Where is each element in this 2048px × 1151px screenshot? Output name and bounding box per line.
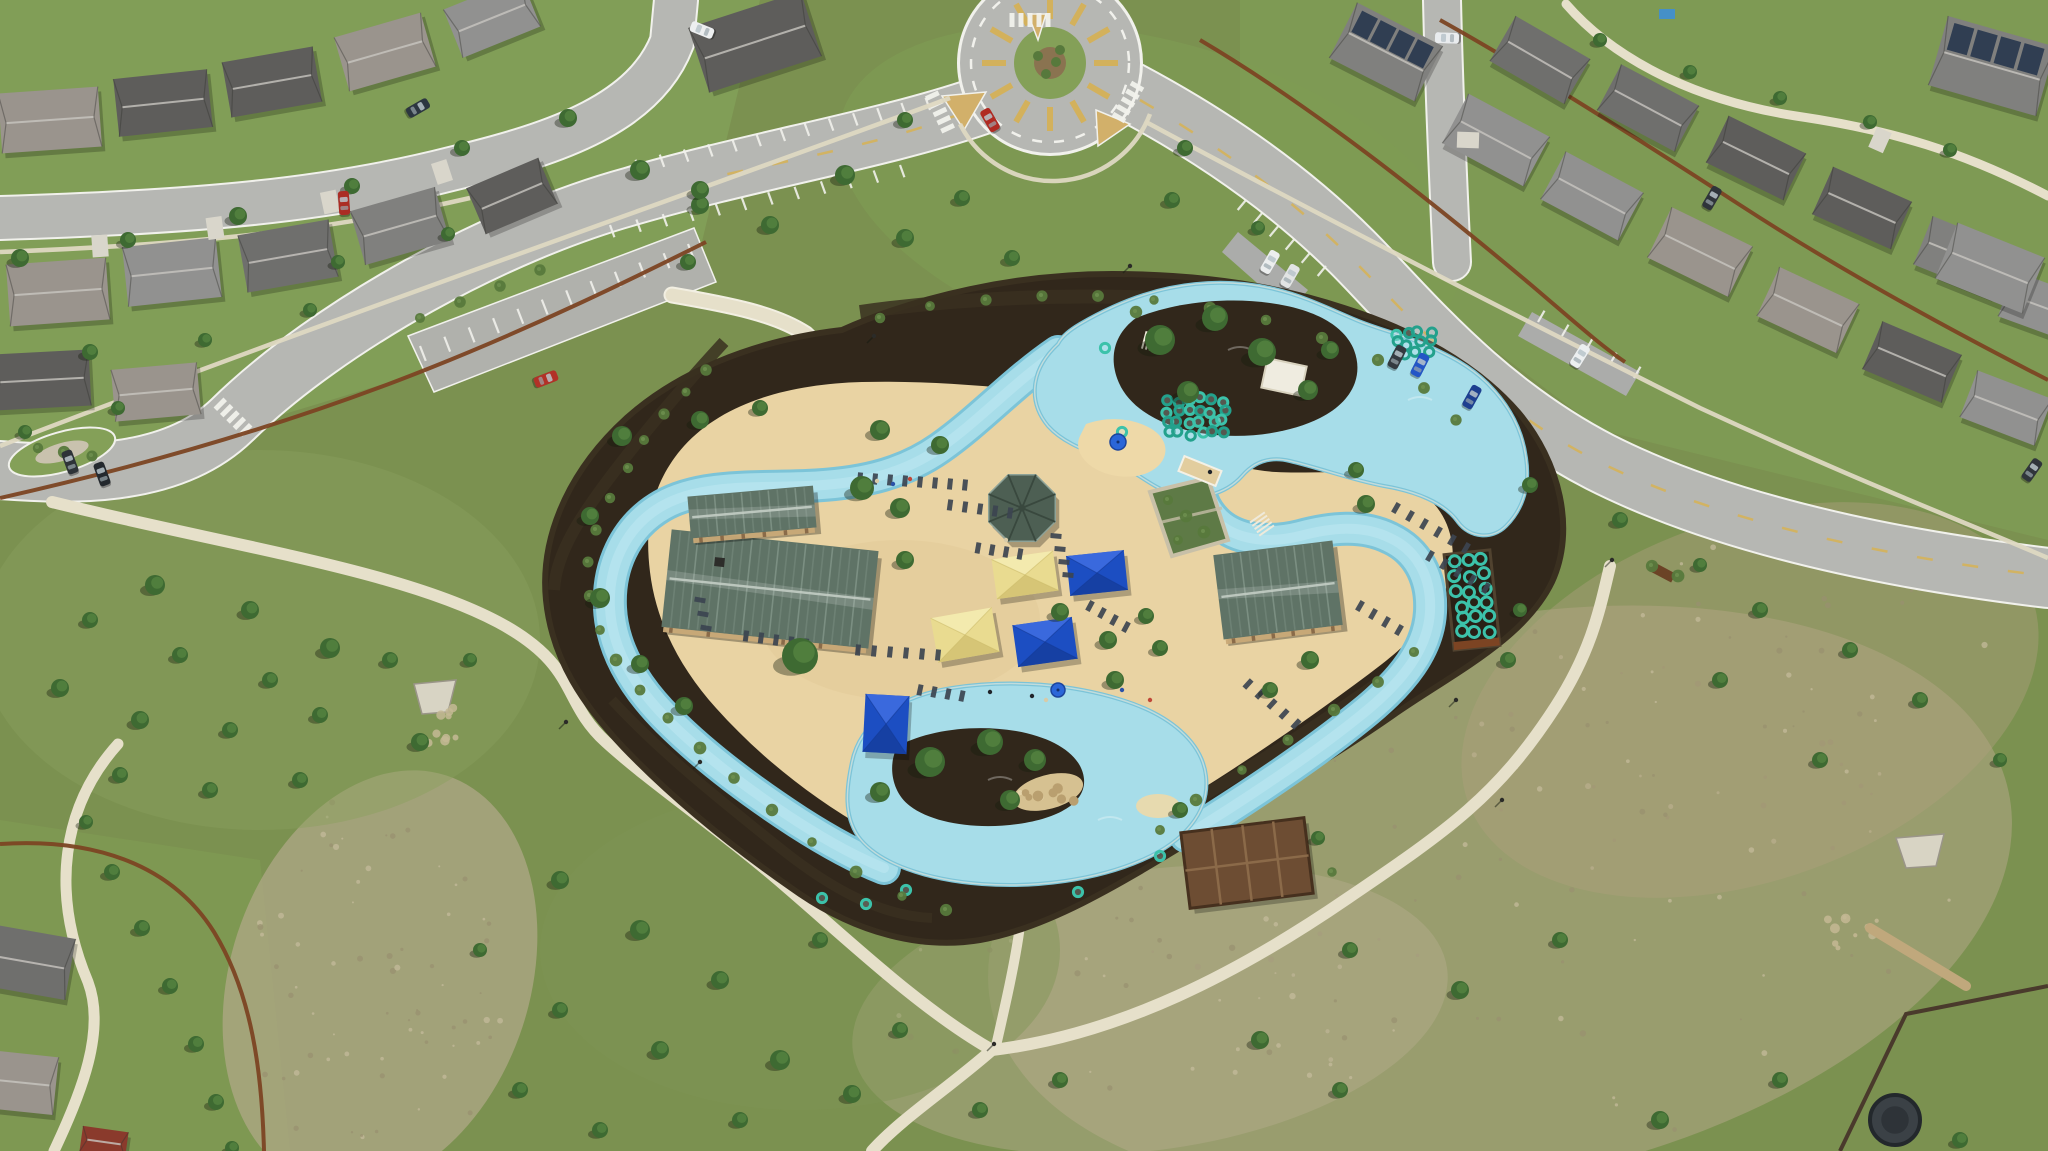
dirt-speckle [1819,648,1825,654]
dirt-speckle [351,1131,353,1133]
shrub-highlight [1165,497,1169,501]
dirt-speckle [390,833,396,839]
tree-canopy-highlight [1143,609,1153,619]
lamp-post [1128,264,1132,268]
tree-canopy-highlight [477,944,485,952]
pool-tube [817,893,826,902]
tube-storage-pen [1444,550,1500,650]
blue-shade-sail [1012,617,1081,673]
dirt-speckle [430,964,434,968]
tree-canopy-highlight [17,251,28,262]
rock [1830,923,1840,933]
wall-column [706,632,710,637]
car-windshield [340,197,348,203]
shrub-highlight [1095,293,1099,297]
dirt-speckle [329,843,333,847]
dirt-speckle [1947,898,1950,901]
dirt-speckle [1569,887,1574,892]
dirt-speckle [488,1036,492,1040]
dirt-speckle [1514,902,1519,907]
shrub-highlight [641,437,645,441]
pool-tube [1173,427,1182,436]
tree-canopy-highlight [1457,983,1468,994]
dirt-speckle [409,1028,413,1032]
shrub-highlight [637,687,641,691]
pool-tube [1175,406,1184,415]
blue-shade-sail [862,694,912,760]
tree-canopy-highlight [876,784,888,796]
pool-tube [1073,887,1082,896]
tree-canopy-highlight [387,653,397,663]
wall-column [818,643,822,648]
dirt-speckle [1749,847,1755,853]
dirt-speckle [1850,954,1853,957]
dirt-speckle [1651,670,1654,673]
tree-canopy-highlight [445,228,453,236]
dirt-speckle [1785,635,1787,637]
tree-canopy-highlight [849,1087,860,1098]
dirt-speckle [352,901,354,903]
crosswalk-bar [1019,13,1024,27]
shrub-highlight [1375,679,1379,683]
wall-column [1291,631,1295,636]
shrub-highlight [1319,335,1323,339]
tree-canopy-highlight [793,641,815,663]
tree-canopy-highlight [1757,603,1767,613]
pool-tube [1163,396,1172,405]
trampoline-mat [1881,1106,1909,1134]
pool-tube [1155,851,1164,860]
wall-column [784,530,788,535]
shrub-highlight [1175,537,1179,541]
dirt-speckle [1191,1067,1195,1071]
car-rear-window [340,206,348,211]
tree-canopy-highlight [1347,943,1357,953]
pool-tube [1426,336,1435,345]
lamp-post [1500,798,1504,802]
house [113,69,216,142]
dirt-speckle [296,942,301,947]
shrub-highlight [1193,797,1197,801]
driveway-apron [206,216,225,240]
dirt-speckle [1710,544,1716,550]
dirt-speckle [282,1077,286,1081]
lounge-chair [1062,572,1073,578]
tree-canopy-highlight [125,233,135,243]
dirt-speckle [1561,960,1564,963]
dirt-speckle [1802,710,1804,712]
dirt-speckle [1668,899,1672,903]
rock [1841,914,1851,924]
tree-canopy-highlight [924,750,942,768]
dirt-speckle [1476,1017,1479,1020]
car-body [338,191,351,216]
dirt-speckle [1263,916,1268,921]
tree-canopy-highlight [937,438,948,449]
dirt-speckle [452,1045,454,1047]
dirt-speckle [1717,895,1722,900]
tree-canopy-highlight [902,553,913,564]
wall-column [1311,628,1315,633]
tree-canopy-highlight [902,231,913,242]
island-shrub [1051,57,1061,67]
dirt-speckle [484,938,489,943]
dirt-speckle [341,838,343,840]
tree-canopy-highlight [1057,605,1068,616]
house [122,237,225,312]
lamp-post [992,1042,996,1046]
lamp-post [872,334,876,338]
dirt-speckle [308,1053,314,1059]
tree-canopy-highlight [137,713,148,724]
pool-tube [1171,417,1180,426]
tree-canopy-highlight [757,401,767,411]
tree-canopy-highlight [1304,382,1316,394]
tree-canopy-highlight [317,708,327,718]
house [6,257,113,331]
dirt-speckle [1900,601,1904,605]
tree-canopy-highlight [557,1003,567,1013]
tree-canopy-highlight [1307,653,1318,664]
dirt-speckle [487,921,491,925]
person [1044,698,1048,702]
dirt-speckle [295,986,298,989]
dirt-speckle [497,1018,503,1024]
tree-canopy-highlight [517,1083,527,1093]
dirt-speckle [1289,993,1295,999]
yellow-shade-sail [992,550,1063,605]
east-pavilion [1213,540,1347,646]
pool-tube [1207,395,1216,404]
dirt-speckle [380,1073,385,1078]
shrub-highlight [769,807,773,811]
tree-canopy-highlight [737,1113,747,1123]
dirt-speckle [405,828,410,833]
tree-canopy-highlight [417,735,428,746]
tree-canopy-highlight [1717,673,1727,683]
tree-canopy-highlight [229,1142,237,1150]
tree-canopy-highlight [207,783,217,793]
wall-column [1271,633,1275,638]
shrub-highlight [1331,707,1335,711]
tree-canopy-highlight [1184,383,1197,396]
tree-canopy-highlight [1255,222,1263,230]
shrub-highlight [877,315,881,319]
rock [1832,940,1838,946]
pool-tube [1412,327,1421,336]
driveway-apron [1457,132,1480,149]
tree-canopy-highlight [297,773,307,783]
island-shrub [1055,45,1065,55]
dirt-speckle [1874,719,1877,722]
dirt-speckle [1218,999,1221,1002]
person [891,482,895,486]
dirt-speckle [1129,918,1134,923]
tree-canopy-highlight [1177,803,1187,813]
wall-column [669,628,673,633]
shrub-highlight [1133,309,1137,313]
dirt-speckle [442,1075,446,1079]
dirt-speckle [331,961,336,966]
dirt-speckle [447,912,451,916]
tree-canopy-highlight [193,1037,203,1047]
tree-canopy-highlight [335,256,343,264]
rock [449,704,457,712]
shrub-highlight [1201,529,1205,533]
tree-canopy-highlight [817,933,827,943]
shrub-highlight [585,559,589,563]
tree-canopy-highlight [139,921,149,931]
tree-canopy-highlight [1997,754,2005,762]
tree-canopy-highlight [876,422,888,434]
tree-canopy-highlight [959,191,969,201]
person [1148,698,1152,702]
tree-canopy-highlight [1006,792,1018,804]
tree-canopy-highlight [109,865,119,875]
shrub-highlight [1183,513,1187,517]
tree-canopy-highlight [326,640,338,652]
boulder [1069,796,1079,806]
dirt-speckle [1138,886,1143,891]
dirt-speckle [1392,1029,1394,1031]
rock [442,734,450,742]
dirt-speckle [1157,938,1162,943]
shrub-highlight [35,445,39,449]
dirt-speckle [1857,711,1862,716]
dirt-speckle [356,880,360,884]
umbrella-pole [1117,441,1120,444]
dirt-speckle [1802,891,1807,896]
tree-canopy-highlight [841,167,853,179]
roof-vent [714,557,725,567]
dirt-speckle [1496,1017,1501,1022]
tree-canopy-highlight [167,979,177,989]
tree-canopy-highlight [1517,604,1525,612]
dirt-speckle [1792,725,1794,727]
dirt-speckle [387,953,393,959]
dirt-speckle [333,1033,335,1035]
dirt-speckle [1236,1047,1240,1051]
dirt-speckle [1634,939,1636,941]
shrub-highlight [497,283,501,287]
driveway-apron [91,234,108,257]
tree-canopy-highlight [985,731,1001,747]
tree-canopy-highlight [1315,832,1323,840]
dirt-speckle [257,924,263,930]
aerial-photo-stage [0,0,2048,1151]
dirt-speckle [1672,1127,1676,1131]
tree-canopy-highlight [697,413,708,424]
tree-canopy-highlight [1105,633,1116,644]
tree-canopy-highlight [1257,1033,1268,1044]
dirt-speckle [442,984,444,986]
shrub-highlight [89,453,93,457]
dirt-speckle [1334,999,1337,1002]
dirt-speckle [1537,786,1543,792]
dirt-speckle [360,1134,363,1137]
person [1030,694,1034,698]
shrub-highlight [683,389,687,393]
dirt-speckle [386,1012,389,1015]
dirt-speckle [1229,945,1235,951]
dirt-speckle [294,1070,300,1076]
tree-canopy-highlight [1327,343,1338,354]
shrub-highlight [731,775,735,779]
pool-tube [1207,427,1216,436]
wall-column [1331,626,1335,631]
pool-tube [1219,428,1228,437]
tree-canopy-highlight [1917,693,1927,703]
dirt-speckle [312,1012,315,1015]
tree-canopy-highlight [227,723,237,733]
lounge-chair [1058,559,1069,565]
tree-canopy-highlight [151,577,163,589]
tree-canopy-highlight [235,209,246,220]
shrub-highlight [625,465,629,469]
dirt-speckle [1845,769,1849,773]
wall-column [741,534,745,539]
dirt-speckle [408,1019,410,1021]
shrub-highlight [537,267,541,271]
person [875,479,879,483]
pool-tube [1416,337,1425,346]
shrub-highlight [1411,649,1415,653]
dirt-speckle [1115,917,1118,920]
boulder [1025,794,1032,801]
dirt-speckle [418,1108,420,1110]
dirt-speckle [1510,727,1515,732]
dirt-speckle [1103,975,1106,978]
tree-canopy-highlight [22,426,30,434]
wall-column [1232,638,1236,643]
tree-canopy-highlight [1363,497,1374,508]
dirt-speckle [1267,1049,1273,1055]
car-body [1435,32,1459,44]
backyard-pool [1659,9,1675,19]
wall-column [720,536,724,541]
house [0,1049,62,1120]
garden-shade-structure [1181,817,1318,914]
dirt-speckle [425,1040,429,1044]
dirt-speckle [1655,701,1657,703]
crosswalk-bar [1037,13,1042,27]
dirt-speckle [1763,724,1767,728]
tree-canopy-highlight [636,162,648,174]
dirt-speckle [1342,1035,1347,1040]
dirt-speckle [415,1010,420,1015]
tree-canopy-highlight [977,1103,987,1113]
shrub-highlight [1375,357,1379,361]
wall-column [805,528,809,533]
dirt-speckle [1166,954,1172,960]
tree-canopy-highlight [213,1095,223,1105]
dirt-speckle [260,933,264,937]
tree-canopy-highlight [83,816,91,824]
dirt-speckle [1085,957,1088,960]
rock [453,735,459,741]
person [1120,688,1124,692]
dirt-speckle [1740,1018,1742,1020]
dirt-speckle [1612,1096,1615,1099]
shrub-highlight [927,303,931,307]
dirt-speckle [366,865,372,871]
dirt-speckle [1641,613,1645,617]
dirt-speckle [1652,774,1655,777]
tree-canopy-highlight [1009,251,1019,261]
shrub-highlight [1453,417,1457,421]
dirt-speckle [1822,596,1828,602]
tree-canopy-highlight [1057,1073,1067,1083]
shrub-highlight [983,297,987,301]
dirt-speckle [1639,809,1645,815]
tree-canopy-highlight [202,334,210,342]
tree-canopy-highlight [776,1052,788,1064]
car [338,191,351,218]
dirt-speckle [1981,642,1987,648]
dirt-speckle [1810,688,1812,690]
tree-canopy-highlight [115,402,123,410]
tree-canopy-highlight [1597,34,1605,42]
tree-canopy-highlight [1210,307,1226,323]
dirt-speckle [1463,842,1468,847]
wall-column [762,532,766,537]
crosswalk-bar [1028,13,1033,27]
dirt-speckle [1393,825,1397,829]
shrub-highlight [853,869,857,873]
tree-canopy-highlight [1777,1073,1787,1083]
dirt-speckle [1696,602,1701,607]
pool-tube [1410,347,1419,356]
dirt-speckle [288,993,293,998]
shrub-highlight [697,745,701,749]
crosswalk-bar [1010,13,1015,27]
dirt-speckle [394,965,400,971]
tree-canopy-highlight [1847,643,1857,653]
dirt-speckle [320,832,326,838]
blue-shade-sail [1066,550,1131,602]
dirt-speckle [1074,970,1080,976]
lamp-post [1610,558,1614,562]
tree-canopy-highlight [117,768,127,778]
wall-column [699,537,703,542]
shrub-highlight [1329,869,1333,873]
dirt-speckle [375,1130,379,1134]
house [111,362,205,427]
dirt-speckle [1615,1103,1618,1106]
tree-canopy-highlight [1957,1133,1967,1143]
tree-canopy-highlight [87,613,97,623]
dirt-speckle [1663,813,1668,818]
dirt-speckle [333,844,339,850]
shrub-highlight [607,495,611,499]
shrub-highlight [809,839,813,843]
shrub-highlight [597,627,601,631]
pool-island [1114,301,1358,436]
dirt-speckle [416,1009,418,1011]
tree-canopy-highlight [1817,753,1827,763]
tree-canopy-highlight [597,1123,607,1133]
shrub-highlight [665,715,669,719]
dirt-speckle [1274,922,1278,926]
dirt-speckle [1825,602,1831,608]
island-shrub [1033,51,1043,61]
dirt-speckle [480,992,482,994]
dirt-speckle [1123,983,1128,988]
tree-canopy-highlight [681,699,692,710]
tree-canopy-highlight [247,603,258,614]
rock [1875,919,1879,923]
shrub-highlight [417,315,421,319]
